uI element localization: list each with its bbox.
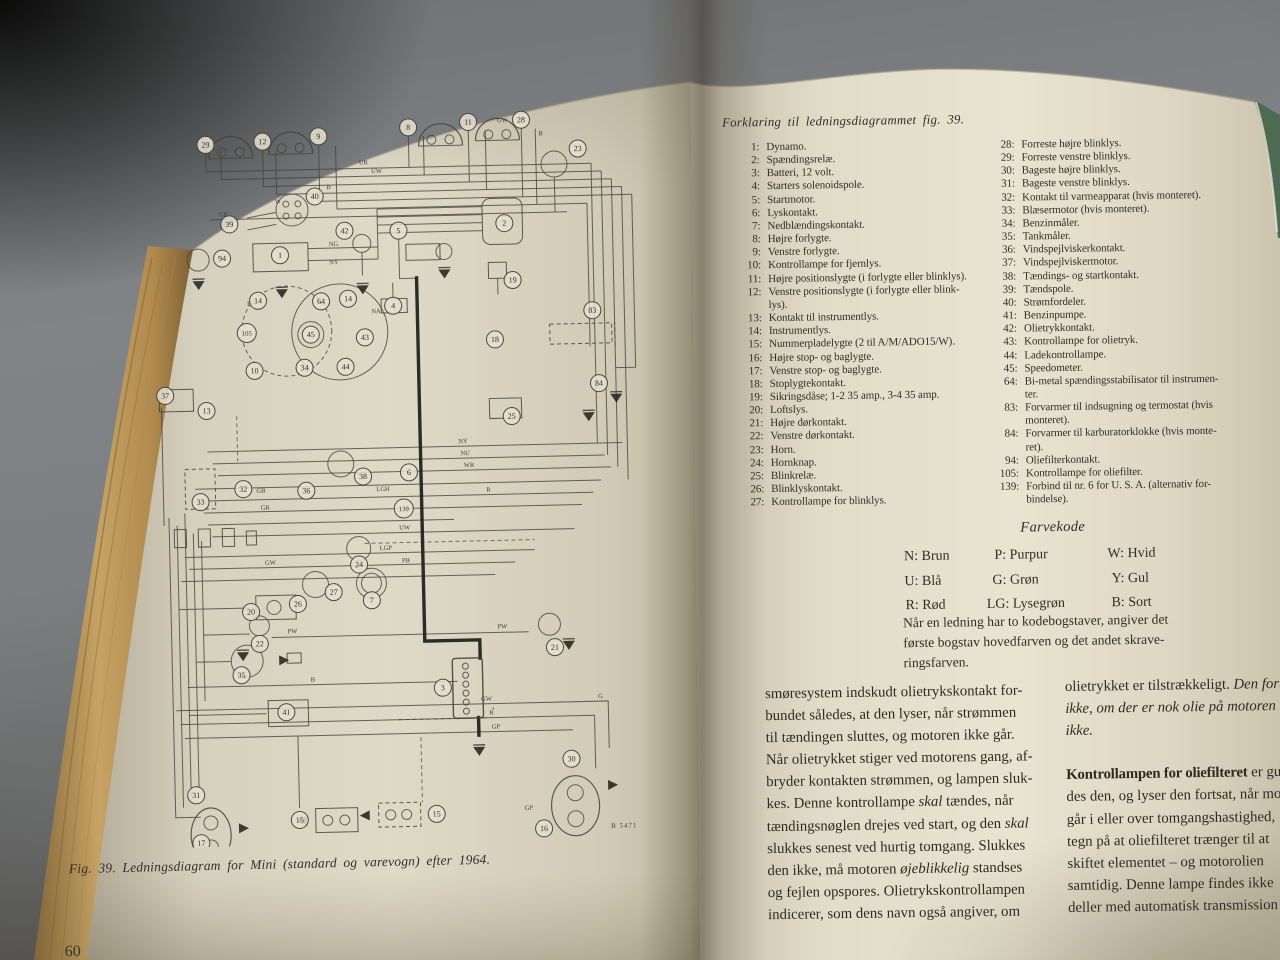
svg-text:NY: NY (329, 259, 339, 266)
svg-text:25: 25 (508, 412, 516, 421)
figure-caption: Fig. 39. Ledningsdiagram for Mini (stand… (69, 852, 491, 878)
svg-text:24: 24 (355, 560, 363, 569)
svg-text:GR: GR (261, 505, 271, 512)
svg-text:17: 17 (197, 839, 205, 848)
svg-text:41: 41 (282, 708, 290, 717)
svg-text:39: 39 (225, 220, 233, 229)
color-code-column: P: PurpurG: GrønLG: Lysegrøn (986, 542, 1105, 617)
svg-text:GP: GP (492, 723, 501, 730)
svg-text:38: 38 (359, 472, 367, 481)
svg-text:42: 42 (340, 226, 348, 235)
svg-text:NA: NA (371, 308, 381, 315)
svg-text:37: 37 (161, 391, 169, 400)
color-code-column: N: BrunU: BlåR: Rød (898, 544, 987, 619)
body-line: skiftet elementet – og motorolien (1067, 849, 1280, 875)
book-photo: URUWBGRGWBNGNYWNAFWNYNUWRRLGHGBGRUWLGPPB… (0, 0, 1280, 960)
left-page: URUWBGRGWBNGNYWNAFWNYNUWRRLGHGBGRUWLGPPB… (29, 70, 729, 960)
svg-text:8: 8 (406, 123, 410, 132)
svg-text:W: W (275, 198, 282, 205)
svg-text:NY: NY (458, 438, 468, 445)
body-line: ikke, om der er nok olie på motoren e (1065, 694, 1280, 720)
page-number: 60 (65, 943, 81, 960)
body-line: slukkes senest ved hurtig tomgang. Slukk… (767, 834, 1067, 860)
svg-text:139: 139 (399, 506, 410, 513)
svg-text:B: B (326, 184, 331, 191)
svg-text:32: 32 (239, 485, 247, 494)
svg-text:26: 26 (294, 599, 302, 608)
svg-text:84: 84 (595, 379, 603, 388)
svg-text:B: B (538, 130, 543, 137)
svg-text:30: 30 (567, 754, 575, 763)
svg-text:33: 33 (196, 498, 204, 507)
svg-text:PW: PW (497, 623, 508, 630)
color-code-entry: G: Grøn (986, 567, 1104, 593)
svg-text:2: 2 (502, 219, 506, 228)
svg-text:83: 83 (588, 306, 596, 315)
svg-text:UR: UR (359, 159, 369, 166)
color-code-entry: P: Purpur (986, 542, 1104, 568)
body-line: ikke. (1065, 716, 1280, 742)
body-line: Kontrollampen for oliefilteret er gul. (1066, 760, 1280, 786)
svg-text:35: 35 (237, 671, 245, 680)
body-text-right-column: olietrykket er tilstrækkeligt. Den fortæ… (1065, 672, 1280, 919)
svg-text:14: 14 (254, 296, 262, 305)
svg-text:PB: PB (402, 557, 411, 564)
svg-text:22: 22 (256, 639, 264, 648)
legend-item: 83:Forvarmer til indsugning og termostat… (986, 398, 1276, 428)
svg-text:12: 12 (258, 137, 266, 146)
svg-text:21: 21 (551, 643, 559, 652)
svg-text:3: 3 (441, 683, 445, 692)
svg-text:44: 44 (341, 362, 349, 371)
svg-text:18: 18 (491, 335, 499, 344)
svg-text:34: 34 (300, 363, 308, 372)
color-code-note: Når en ledning har to kodebogstaver, ang… (903, 609, 1224, 673)
body-line: des den, og lyser den fortsat, når mo (1066, 782, 1280, 808)
svg-text:16: 16 (540, 824, 548, 833)
color-code-entry: N: Brun (898, 544, 986, 570)
svg-text:29: 29 (201, 140, 209, 149)
svg-text:R: R (486, 487, 491, 494)
color-code-table: N: BrunU: BlåR: RødP: PurpurG: GrønLG: L… (898, 541, 1209, 619)
legend-list-left: 1:Dynamo.2:Spændingsrelæ.3:Batteri, 12 v… (733, 138, 1000, 510)
legend-list-right: 28:Forreste højre blinklys.29:Forreste v… (982, 135, 1277, 507)
svg-text:20: 20 (247, 608, 255, 617)
svg-text:11: 11 (464, 117, 472, 126)
svg-text:1: 1 (278, 251, 282, 260)
color-code-entry: W: Hvid (1104, 541, 1200, 567)
body-text-left-column: smøresystem indskudt olietrykskontakt fo… (765, 679, 1068, 926)
svg-text:15: 15 (296, 815, 304, 824)
right-page: Forklaring til ledningsdiagrammet fig. 3… (699, 72, 1280, 960)
body-line: og fejlen opspores. Olietrykskontrollamp… (768, 878, 1068, 904)
svg-text:19: 19 (509, 276, 517, 285)
svg-text:5: 5 (396, 226, 400, 235)
body-line (1066, 738, 1280, 764)
svg-text:105: 105 (242, 331, 253, 338)
body-line: indicerer, som dens navn også angiver, o… (768, 900, 1068, 926)
svg-text:GW: GW (265, 559, 277, 566)
wiring-diagram: URUWBGRGWBNGNYWNAFWNYNUWRRLGHGBGRUWLGPPB… (145, 107, 661, 848)
svg-text:LGP: LGP (380, 545, 393, 552)
svg-text:43: 43 (361, 333, 369, 342)
svg-text:G: G (598, 693, 603, 700)
svg-text:GB: GB (256, 488, 266, 495)
svg-text:6: 6 (407, 468, 411, 477)
legend-item: 139:Forbind til nr. 6 for U. S. A. (alte… (987, 477, 1277, 507)
explanation-heading: Forklaring til ledningsdiagrammet fig. 3… (722, 112, 964, 130)
svg-text:23: 23 (574, 144, 582, 153)
body-line: samtidig. Denne lampe findes ikke (1068, 871, 1280, 897)
svg-text:14: 14 (344, 294, 352, 303)
legend-item: 84:Forvarmer til karburatorklokke (hvis … (986, 424, 1276, 454)
svg-text:64: 64 (317, 297, 325, 306)
svg-text:NU: NU (460, 450, 470, 457)
svg-text:+: + (491, 706, 495, 713)
color-code-column: W: HvidY: GulB: Sort (1104, 541, 1201, 616)
svg-text:10: 10 (251, 366, 259, 375)
legend-item: 64:Bi-metal spændingsstabilisator til in… (986, 372, 1276, 402)
body-line: smøresystem indskudt olietrykskontakt fo… (765, 679, 1065, 705)
svg-text:13: 13 (202, 406, 210, 415)
svg-text:7: 7 (370, 596, 374, 605)
svg-text:40: 40 (311, 192, 319, 201)
svg-text:B 5471: B 5471 (611, 821, 638, 830)
svg-text:27: 27 (330, 588, 338, 597)
color-code-title: Farvekode (898, 517, 1208, 538)
svg-text:GW: GW (497, 117, 509, 124)
svg-text:45: 45 (307, 330, 315, 339)
svg-text:B: B (311, 677, 316, 684)
body-line: olietrykket er tilstrækkeligt. Den fortæ (1065, 672, 1280, 698)
color-code-section: Farvekode N: BrunU: BlåR: RødP: PurpurG:… (898, 517, 1209, 619)
body-line: går i eller over tomgangshastighed, (1067, 804, 1280, 830)
legend-item: 12:Venstre positionslygte (i forlygte el… (735, 283, 997, 313)
svg-text:31: 31 (192, 791, 200, 800)
svg-text:LGH: LGH (376, 486, 390, 493)
svg-text:94: 94 (218, 254, 226, 263)
legend-item: 27:Kontrollampe for blinklys. (738, 493, 1000, 510)
svg-text:UW: UW (371, 168, 383, 175)
svg-text:WR: WR (464, 462, 475, 469)
svg-text:4: 4 (391, 301, 395, 310)
body-line: tegn på at oliefilteret trænger til at (1067, 826, 1280, 852)
svg-text:NG: NG (329, 241, 339, 248)
svg-text:UW: UW (399, 524, 411, 531)
svg-text:9: 9 (316, 132, 320, 141)
svg-text:GW: GW (481, 696, 493, 703)
color-code-entry: Y: Gul (1104, 566, 1200, 592)
svg-text:PW: PW (287, 628, 298, 635)
color-code-entry: U: Blå (898, 569, 986, 595)
svg-text:28: 28 (517, 115, 525, 124)
body-line: deller med automatisk transmission (1068, 893, 1280, 919)
svg-text:36: 36 (302, 486, 310, 495)
svg-text:GP: GP (525, 805, 534, 812)
svg-text:15: 15 (433, 809, 441, 818)
